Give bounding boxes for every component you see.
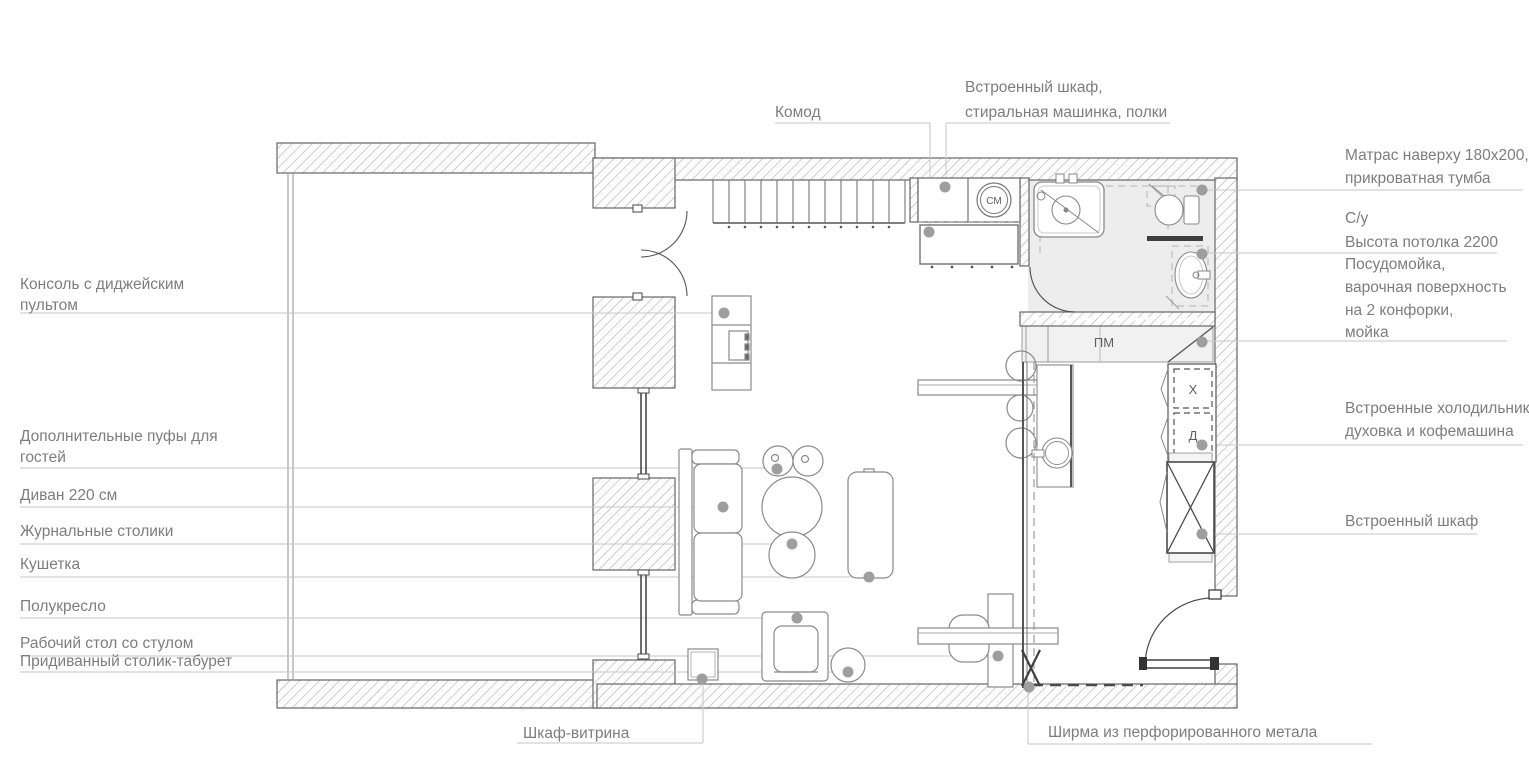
- label-mattress: Матрас наверху 180x200,: [1345, 147, 1529, 164]
- toilet: [1155, 195, 1199, 225]
- label-console: Консоль с диджейским: [20, 276, 184, 293]
- glass-wall: [288, 173, 293, 680]
- svg-text:на 2 конфорки,: на 2 конфорки,: [1345, 302, 1453, 319]
- svg-text:мойка: мойка: [1345, 324, 1389, 341]
- double-door: [633, 205, 687, 300]
- shower: [1034, 174, 1104, 237]
- svg-text:прикроватная тумба: прикроватная тумба: [1345, 170, 1491, 187]
- svg-text:пультом: пультом: [20, 297, 78, 314]
- label-armchair: Полукресло: [20, 598, 106, 615]
- label-kitchen: Посудомойка,: [1345, 256, 1445, 273]
- built-in-wardrobe: [1160, 453, 1214, 562]
- label-fridge-oven: Встроенные холодильник,: [1345, 400, 1529, 417]
- dishwasher-mark: ПМ: [1094, 335, 1114, 350]
- washer-mark: СМ: [986, 196, 1001, 207]
- svg-text:гостей: гостей: [20, 449, 66, 466]
- svg-text:Высота потолка 2200: Высота потолка 2200: [1345, 234, 1498, 251]
- label-metal-screen: Ширма из перфорированного метала: [1048, 724, 1318, 741]
- label-wardrobe: Встроенный шкаф: [1345, 513, 1478, 530]
- label-daybed: Кушетка: [20, 556, 81, 573]
- poufs: [763, 446, 823, 476]
- work-desk: [918, 594, 1058, 687]
- label-bathroom: С/у: [1345, 210, 1369, 227]
- window-mid-upper: [638, 388, 649, 479]
- oven-mark: Д: [1189, 428, 1198, 443]
- label-poufs: Дополнительные пуфы для: [20, 428, 218, 445]
- staircase: [713, 180, 905, 228]
- sofa: [679, 449, 742, 615]
- kitchen-run: ПМ: [1022, 326, 1213, 362]
- label-coffee-tables: Журнальные столики: [20, 523, 173, 540]
- svg-text:стиральная машинка, полки: стиральная машинка, полки: [965, 104, 1167, 121]
- coffee-tables: [762, 477, 822, 578]
- label-sofa: Диван 220 см: [20, 487, 117, 504]
- svg-text:варочная поверхность: варочная поверхность: [1345, 279, 1507, 296]
- bar-counter: [918, 380, 1040, 395]
- svg-text:духовка и кофемашина: духовка и кофемашина: [1345, 423, 1514, 440]
- kitchen-counter: [1032, 365, 1073, 487]
- closet-washer: СМ: [918, 178, 1020, 222]
- bath-partition: [1147, 236, 1203, 241]
- bar-stools: [1006, 351, 1036, 458]
- label-closet-washer: Встроенный шкаф,: [965, 79, 1103, 96]
- window-mid-lower: [638, 570, 649, 659]
- dresser: [920, 225, 1018, 268]
- floor-plan-page: ПМ: [0, 0, 1529, 783]
- label-side-stool: Придиванный столик-табурет: [20, 653, 232, 670]
- label-work-desk: Рабочий стол со стулом: [20, 635, 193, 652]
- label-display-cabinet: Шкаф-витрина: [523, 725, 630, 742]
- fridge-column: Х Д: [1161, 364, 1216, 462]
- label-dresser: Комод: [775, 104, 821, 121]
- fridge-mark: Х: [1189, 382, 1198, 397]
- dj-console: [712, 296, 751, 390]
- daybed: [848, 469, 893, 578]
- entrance-door: [1139, 590, 1221, 670]
